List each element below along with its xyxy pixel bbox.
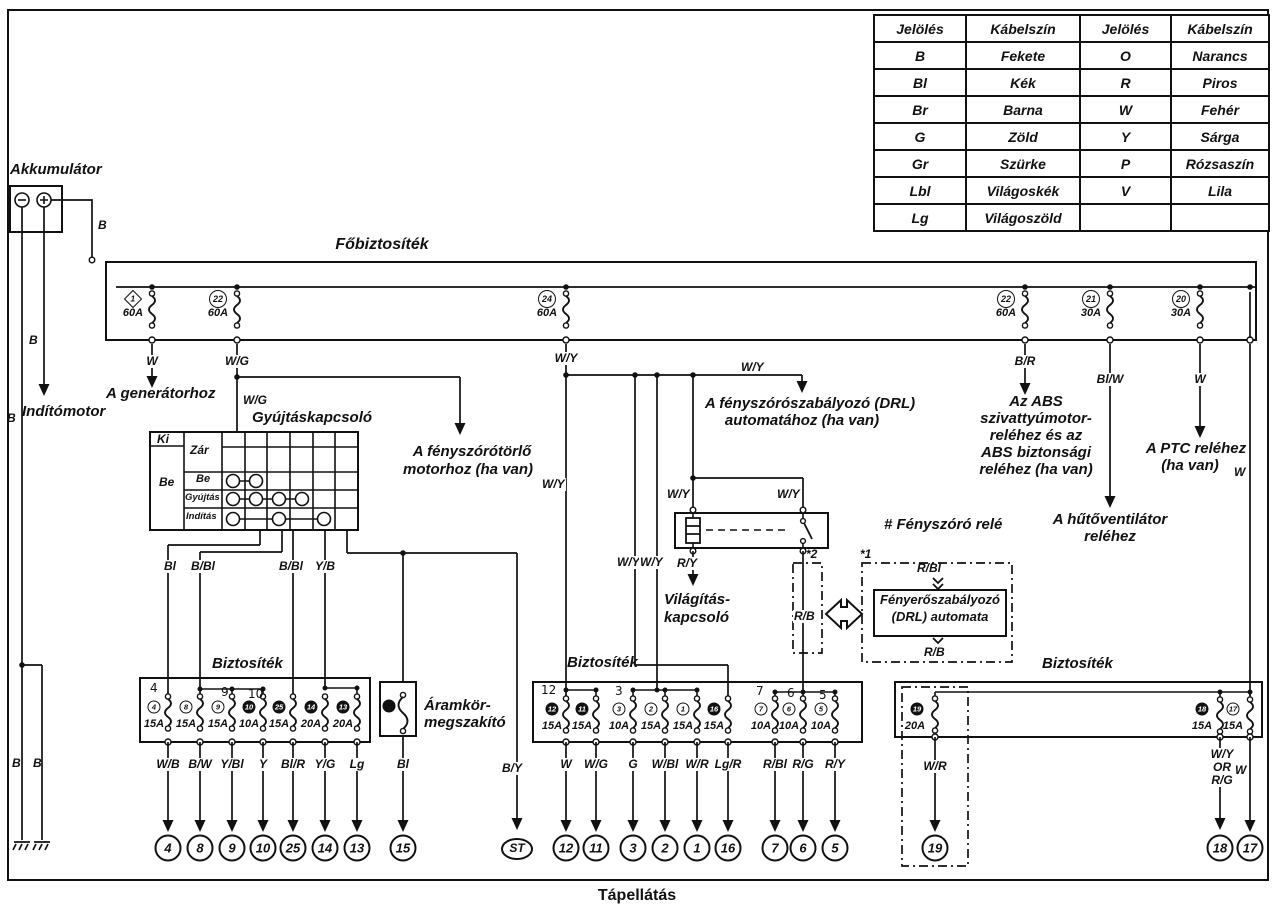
wire-label-rb: R/B — [924, 646, 945, 659]
fuse-rating: 20A — [301, 719, 321, 731]
fuse-icon: 21 — [1082, 290, 1100, 308]
handwritten-note: 6 — [787, 686, 795, 700]
wire-label-b: B — [33, 757, 42, 770]
dest-abs-line2: szivattyúmotor- — [980, 411, 1092, 427]
handwritten-note: 3 — [615, 684, 623, 698]
handwritten-note: 10 — [248, 687, 263, 701]
connector: 25 — [280, 835, 307, 862]
wire-label-wy: W/Y — [639, 556, 664, 569]
table-row: LblVilágoskékVLila — [874, 177, 1269, 204]
wire-label: R/Y — [824, 758, 846, 771]
wire-label-b: B — [7, 412, 16, 425]
st-connector-label: ST — [509, 842, 524, 855]
main-fuses — [149, 291, 1203, 328]
wire-label: B/W — [187, 758, 212, 771]
wire-label: Y — [258, 758, 268, 771]
wire-label: G — [627, 758, 638, 771]
handwritten-note: 9 — [221, 685, 229, 699]
wire-label-wy: W/Y — [740, 361, 765, 374]
dest-generator: A generátorhoz — [106, 386, 215, 402]
ignition-row-inditas: Indítás — [186, 512, 217, 522]
wire-label: Y/Bl — [219, 758, 244, 771]
fuse-rating: 10A — [239, 719, 259, 731]
fuse-rating: 60A — [208, 308, 228, 320]
connector: 15 — [390, 835, 417, 862]
fuse-icon: 24 — [538, 290, 556, 308]
table-row: BrBarnaWFehér — [874, 96, 1269, 123]
table-row: GZöldYSárga — [874, 123, 1269, 150]
handwritten-note: 5 — [819, 688, 827, 702]
wire-label-b: B — [97, 219, 108, 232]
fuse-icon: 22 — [997, 290, 1015, 308]
dest-wiper-line1: A fényszórótörlő — [413, 444, 532, 460]
connector: 11 — [583, 835, 610, 862]
dest-abs-line3: reléhez és az — [990, 428, 1083, 444]
wire-label: B/R — [1014, 355, 1037, 368]
ignition-row-gyujtas: Gyújtás — [185, 493, 220, 503]
wire-label: W — [1234, 764, 1247, 777]
fuse-icon: 2 — [645, 703, 658, 716]
double-arrow-icon — [826, 600, 862, 628]
fuse-rating: 15A — [641, 721, 661, 733]
wire-label-wy: W/Y — [541, 478, 566, 491]
wire-label: W — [145, 355, 158, 368]
wire-label-wg: W/G — [242, 394, 268, 407]
fuse-rating: 10A — [779, 721, 799, 733]
wire-label-b: B — [12, 757, 21, 770]
table-row: Jelölés Kábelszín Jelölés Kábelszín — [874, 15, 1269, 42]
connector: 16 — [715, 835, 742, 862]
fuse-icon: 17 — [1227, 703, 1240, 716]
color-code-table: Jelölés Kábelszín Jelölés Kábelszín BFek… — [873, 14, 1270, 232]
fuse-rating: 15A — [542, 721, 562, 733]
connector: 7 — [762, 835, 789, 862]
connector: 13 — [344, 835, 371, 862]
dest-abs-line4: ABS biztonsági — [981, 445, 1091, 461]
fuse-box-left-title: Biztosíték — [212, 656, 283, 672]
wire-label: Bl/R — [280, 758, 306, 771]
main-fuse-box-title: Főbiztosíték — [335, 237, 428, 254]
wire-label-wy: W/Y — [776, 488, 801, 501]
connector: 2 — [652, 835, 679, 862]
ignition-output-wires — [168, 530, 517, 818]
fuse-icon: 14 — [305, 701, 318, 714]
note-star2: *2 — [806, 548, 817, 561]
fuse-icon: 6 — [783, 703, 796, 716]
breaker-label-line1: Áramkör- — [424, 698, 491, 714]
fuse-icon: 22 — [209, 290, 227, 308]
diagram-caption: Tápellátás — [598, 888, 676, 905]
fuse-icon: 1 — [677, 703, 690, 716]
connector: 4 — [155, 835, 182, 862]
drl-unit-line1: Fényerőszabályozó — [880, 593, 1000, 607]
fuse-icon: 11 — [576, 703, 589, 716]
fuse-rating: 15A — [1223, 721, 1243, 733]
wire-label: W/R — [684, 758, 709, 771]
dest-light-switch-line1: Világítás- — [664, 592, 730, 608]
wire-label: Lg/R — [714, 758, 743, 771]
wire-label: W/R — [922, 760, 947, 773]
dest-wiper-line2: motorhoz (ha van) — [403, 462, 533, 478]
fuse-rating: 15A — [176, 719, 196, 731]
fuse-rating: 15A — [704, 721, 724, 733]
wire-label: Bl — [163, 560, 177, 573]
dest-drl-line2: automatához (ha van) — [725, 413, 879, 429]
connector: 19 — [922, 835, 949, 862]
wire-label: Bl/W — [1096, 373, 1125, 386]
fuse-rating: 10A — [609, 721, 629, 733]
dest-fan-line1: A hűtőventilátor — [1053, 512, 1167, 528]
col-header: Jelölés — [874, 15, 966, 42]
table-row: BlKékRPiros — [874, 69, 1269, 96]
note-star1: *1 — [860, 548, 871, 561]
fuse-icon: 25 — [273, 701, 286, 714]
table-row: BFeketeONarancs — [874, 42, 1269, 69]
fuse-rating: 20A — [333, 719, 353, 731]
connector: 12 — [553, 835, 580, 862]
circuit-breaker-symbol — [380, 682, 416, 820]
wire-label: OR — [1212, 761, 1232, 774]
connector: 6 — [790, 835, 817, 862]
fuse-rating: 60A — [996, 308, 1016, 320]
wire-label: W/B — [155, 758, 180, 771]
connector: 5 — [822, 835, 849, 862]
connector: 9 — [219, 835, 246, 862]
fuse-rating: 30A — [1171, 308, 1191, 320]
battery-symbol — [10, 186, 62, 232]
fuse-icon: 16 — [708, 703, 721, 716]
fuse-icon: 10 — [243, 701, 256, 714]
wire-label: R/G — [1210, 774, 1233, 787]
dest-abs-line1: Az ABS — [1009, 394, 1063, 410]
wire-label: W/Bl — [651, 758, 680, 771]
wire-label-wy: W/Y — [666, 488, 691, 501]
wire-label: Lg — [349, 758, 366, 771]
wire-label: R/Bl — [762, 758, 788, 771]
connector: 3 — [620, 835, 647, 862]
fuse-rating: 20A — [905, 721, 925, 733]
connector: 18 — [1207, 835, 1234, 862]
wire-label-w: W — [1233, 466, 1246, 479]
wire-label-rbl: R/Bl — [917, 562, 941, 575]
fuse-icon: 4 — [148, 701, 161, 714]
wire-label-b: B — [29, 334, 38, 347]
fuse-rating: 15A — [572, 721, 592, 733]
fuse-rating: 15A — [1192, 721, 1212, 733]
battery-label: Akkumulátor — [10, 162, 102, 178]
wire-label: Bl — [396, 758, 410, 771]
fuse-icon: 20 — [1172, 290, 1190, 308]
fuse-rating: 15A — [208, 719, 228, 731]
col-header: Jelölés — [1080, 15, 1171, 42]
fuse-rating: 60A — [123, 308, 143, 320]
wire-label-ry: R/Y — [676, 557, 698, 570]
wire-label: W/Y — [554, 352, 579, 365]
fuse-icon: 13 — [337, 701, 350, 714]
wire-label: R/G — [791, 758, 814, 771]
dest-ptc-line1: A PTC reléhez — [1146, 441, 1246, 457]
dest-fan-line2: reléhez — [1084, 529, 1136, 545]
relay-label: # Fényszóró relé — [884, 517, 1002, 533]
starter-label: Indítómotor — [22, 404, 105, 420]
fuse-rating: 30A — [1081, 308, 1101, 320]
ignition-row-be: Be — [196, 474, 210, 486]
wire-label-wy: W/Y — [616, 556, 641, 569]
connector: 1 — [684, 835, 711, 862]
wire-label: W/G — [583, 758, 609, 771]
connector: 8 — [187, 835, 214, 862]
fuse-icon: 9 — [212, 701, 225, 714]
wire-label: Y/B — [314, 560, 336, 573]
fuse-rating: 15A — [673, 721, 693, 733]
table-row: GrSzürkePRózsaszín — [874, 150, 1269, 177]
wire-label: W/Y — [1210, 748, 1235, 761]
dest-light-switch-line2: kapcsoló — [664, 610, 729, 626]
battery-wires — [22, 200, 95, 840]
wire-label: W/G — [224, 355, 250, 368]
fuse-rating: 10A — [751, 721, 771, 733]
ignition-contacts — [227, 475, 331, 526]
dest-drl-line1: A fényszórószabályozó (DRL) — [705, 396, 915, 412]
wire-label: B/Bl — [278, 560, 304, 573]
fuse-rating: 15A — [144, 719, 164, 731]
fuse-icon: 5 — [815, 703, 828, 716]
ignition-pos-on: Be — [159, 476, 174, 489]
fuse-box-mid-title: Biztosíték — [567, 655, 638, 671]
connector: 14 — [312, 835, 339, 862]
col-header: Kábelszín — [1171, 15, 1269, 42]
fuse-box-right-title: Biztosíték — [1042, 656, 1113, 672]
wire-label: W — [1193, 373, 1206, 386]
fuse-icon: 18 — [1196, 703, 1209, 716]
dest-abs-line5: reléhez (ha van) — [979, 462, 1092, 478]
fuse-rating: 10A — [811, 721, 831, 733]
fuse-icon: 7 — [755, 703, 768, 716]
ignition-pos-off: Ki — [157, 433, 169, 446]
distribution-wires — [152, 292, 1250, 696]
handwritten-note: 12 — [541, 683, 556, 697]
fuse-rating: 60A — [537, 308, 557, 320]
fuse-icon: 8 — [180, 701, 193, 714]
fuse-rating: 15A — [269, 719, 289, 731]
handwritten-note: 7 — [756, 684, 764, 698]
breaker-label-line2: megszakító — [424, 715, 506, 731]
wire-label-by: B/Y — [501, 762, 523, 775]
fuse-icon: 3 — [613, 703, 626, 716]
drl-unit-line2: (DRL) automata — [892, 610, 989, 624]
wire-label: W — [559, 758, 572, 771]
connector: 17 — [1237, 835, 1264, 862]
fuse-icon: 19 — [911, 703, 924, 716]
fuse-icon: 12 — [546, 703, 559, 716]
table-row: LgVilágoszöld — [874, 204, 1269, 231]
handwritten-note: 4 — [150, 681, 158, 695]
wire-label: B/Bl — [190, 560, 216, 573]
wire-label: Y/G — [314, 758, 337, 771]
col-header: Kábelszín — [966, 15, 1080, 42]
wire-label-rb: R/B — [793, 610, 816, 623]
wiring-diagram-power-supply: Jelölés Kábelszín Jelölés Kábelszín BFek… — [0, 0, 1280, 915]
ignition-title: Gyújtáskapcsoló — [252, 410, 372, 426]
dest-ptc-line2: (ha van) — [1161, 458, 1219, 474]
ignition-row-zar: Zár — [190, 444, 209, 457]
connector: 10 — [250, 835, 277, 862]
